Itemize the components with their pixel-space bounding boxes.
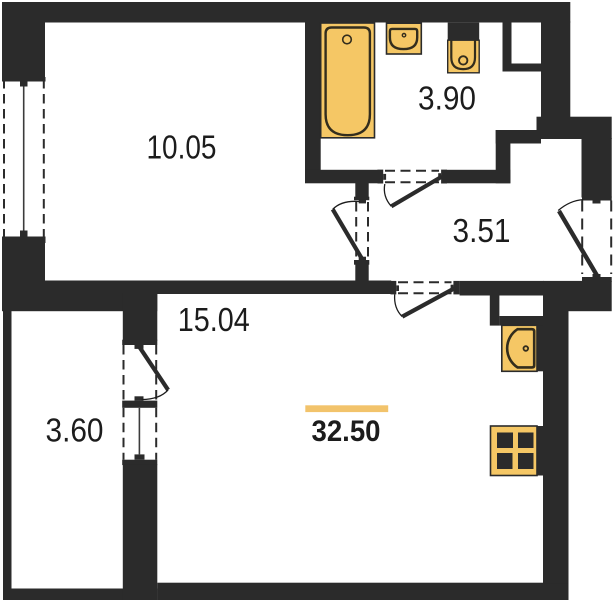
- svg-text:3.90: 3.90: [418, 80, 476, 117]
- svg-text:32.50: 32.50: [312, 415, 381, 448]
- svg-text:3.60: 3.60: [46, 412, 104, 449]
- svg-text:15.04: 15.04: [178, 301, 250, 338]
- svg-text:3.51: 3.51: [453, 212, 511, 249]
- svg-text:10.05: 10.05: [147, 129, 217, 166]
